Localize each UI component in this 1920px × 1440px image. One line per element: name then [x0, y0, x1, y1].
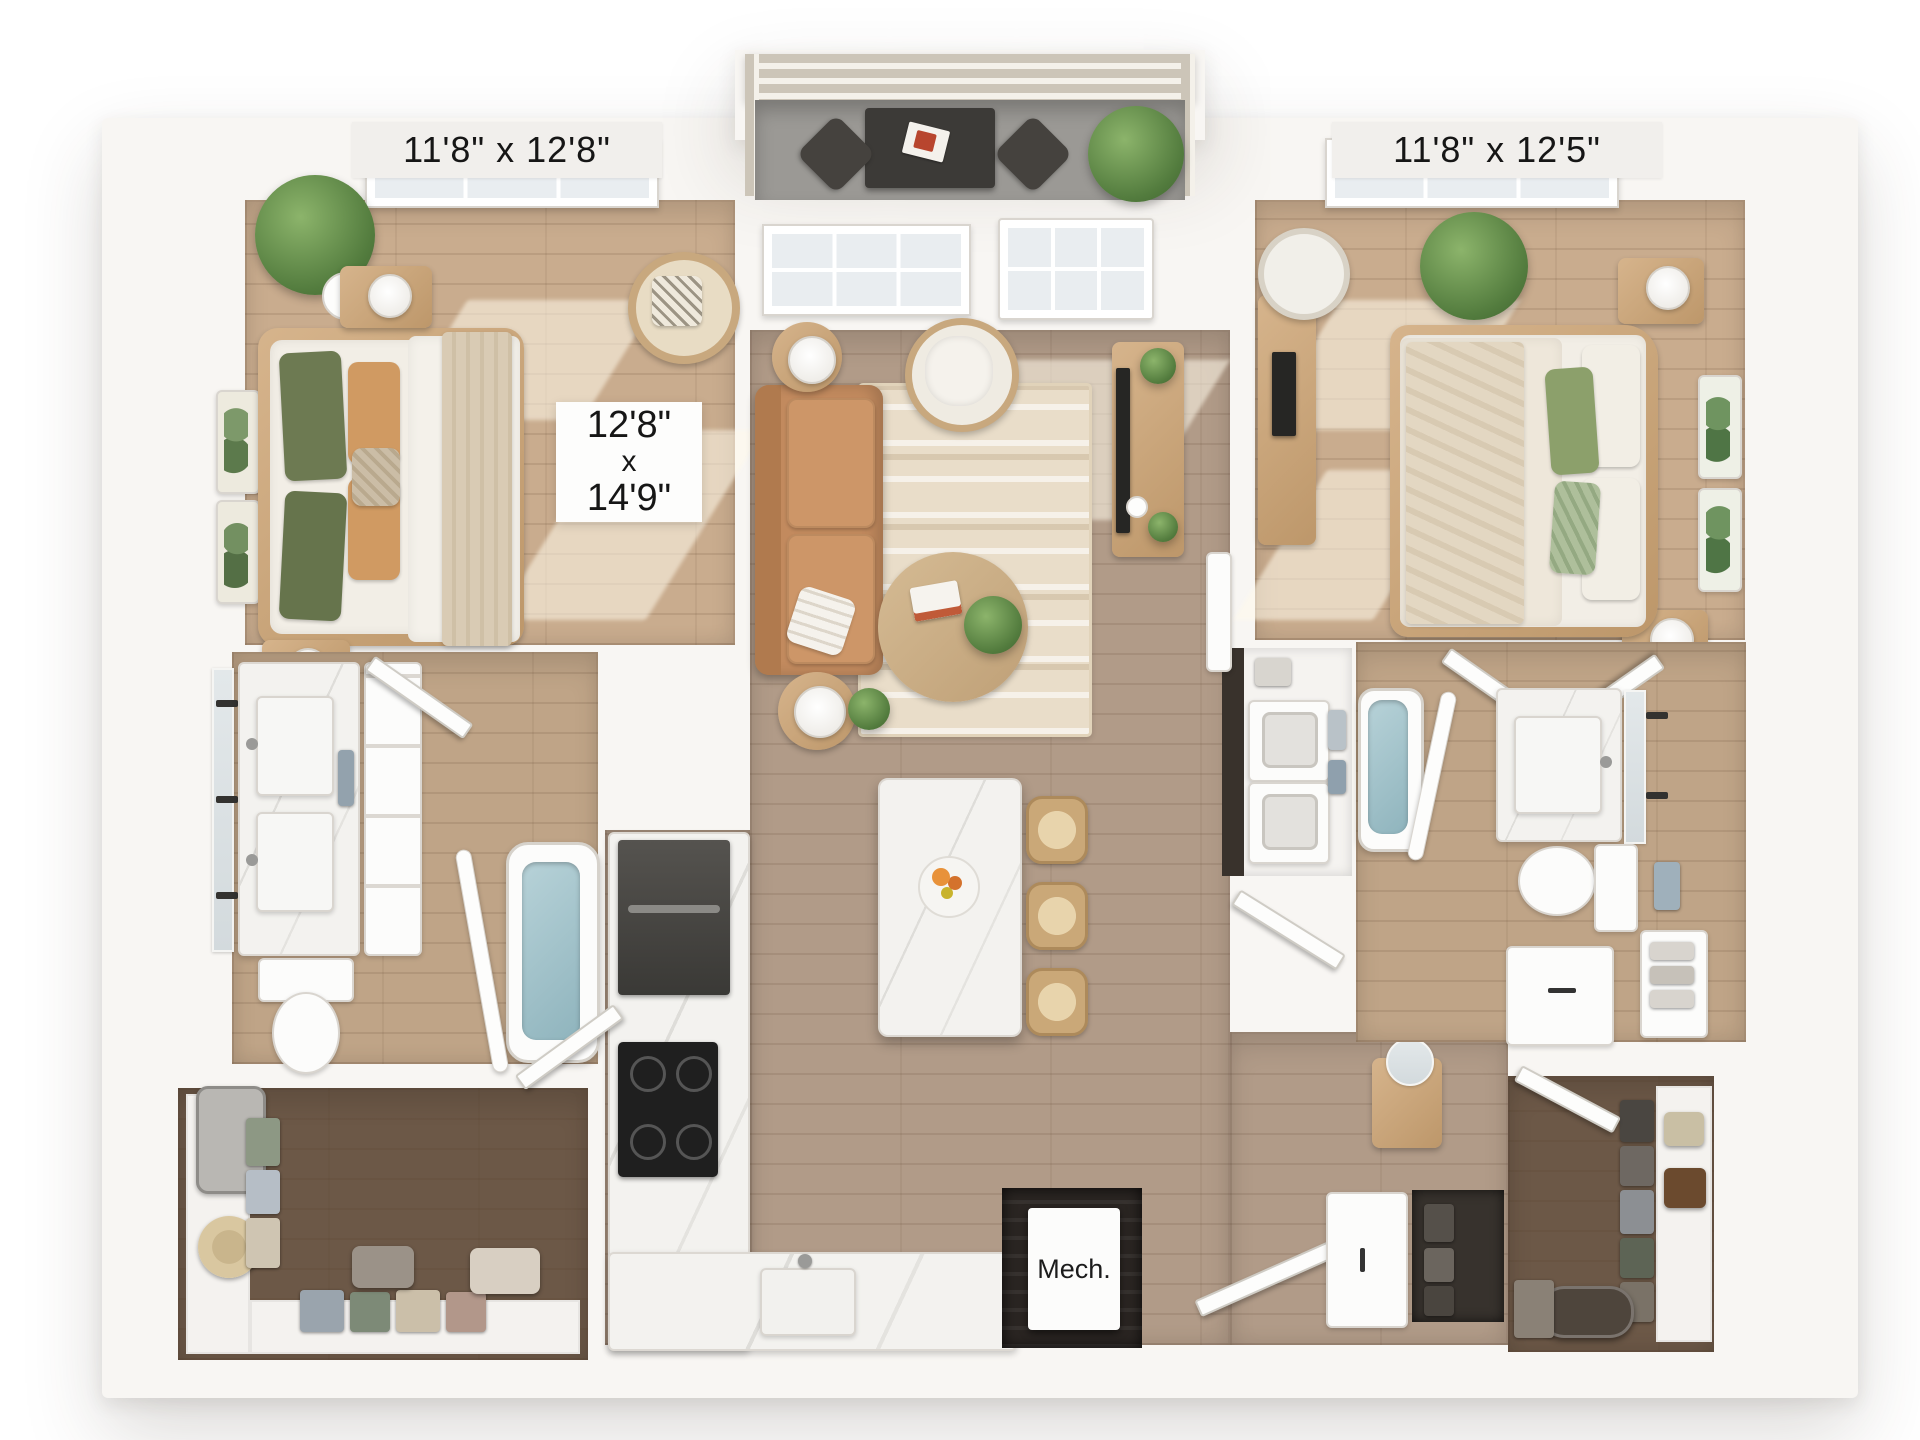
kitchen-sink — [760, 1268, 856, 1336]
bedroom-left-dimension-label: 11'8" x 12'8" — [352, 122, 662, 178]
console-plant — [1148, 512, 1178, 542]
sconce-light — [216, 796, 238, 803]
door-glass — [1008, 228, 1144, 310]
pillow-green — [279, 490, 348, 621]
vanity-mirror — [212, 668, 234, 952]
hanging-clothes-item — [300, 1290, 344, 1332]
sink-faucet — [246, 738, 258, 750]
hanging-clothes-item — [396, 1290, 440, 1332]
hand-towel — [1654, 862, 1680, 910]
console-vase — [1126, 496, 1148, 518]
table-lamp — [368, 274, 412, 318]
bathroom-dresser — [1506, 946, 1614, 1046]
toilet-tank — [1594, 844, 1638, 932]
cooktop-burner — [676, 1056, 712, 1092]
hanging-coat — [1424, 1286, 1454, 1316]
cabinet-handle — [1360, 1248, 1365, 1272]
bar-stool — [1026, 882, 1088, 950]
oven-handle — [628, 905, 720, 913]
folded-towels — [1328, 710, 1346, 750]
hanging-coat — [1424, 1204, 1454, 1242]
pillow-green — [279, 350, 348, 481]
handbag — [1664, 1112, 1704, 1146]
bar-stool — [1026, 796, 1088, 864]
folded-towels — [1650, 942, 1694, 960]
sconce-light — [1646, 792, 1668, 799]
hanging-clothes-item — [1620, 1100, 1654, 1142]
bed-right-throw-blanket — [1406, 342, 1524, 624]
bedroom-right-dimension-label: 11'8" x 12'5" — [1332, 122, 1662, 178]
coffee-table-plant — [964, 596, 1022, 654]
sink-faucet — [1600, 756, 1612, 768]
floor-lamp — [788, 336, 836, 384]
console-plant — [1140, 348, 1176, 384]
living-room-dimension-label: 12'8" x 14'9" — [556, 402, 702, 522]
living-dimension-width: 12'8" — [587, 405, 671, 446]
wall-art-leaf-motif — [224, 512, 248, 588]
hanging-clothes-item — [446, 1292, 486, 1332]
hanging-clothes-item — [246, 1218, 280, 1268]
cooktop-burner — [676, 1124, 712, 1160]
fruit-oranges — [932, 868, 950, 886]
hanging-coat — [1424, 1248, 1454, 1282]
storage-basket — [470, 1248, 540, 1294]
living-small-plant — [848, 688, 890, 730]
sofa-backrest — [755, 385, 781, 675]
living-dimension-separator: x — [622, 446, 637, 478]
sconce-light — [1646, 712, 1668, 719]
floor-plan-render: Mech. — [0, 0, 1920, 1440]
desk-chair — [1258, 228, 1350, 320]
toilet-bowl — [1518, 846, 1596, 916]
folded-towels — [1328, 760, 1346, 794]
pillow-patterned — [352, 448, 400, 506]
bathtub-water — [522, 862, 580, 1040]
bed-left-throw-blanket — [442, 332, 512, 646]
table-lamp — [1646, 266, 1690, 310]
washer-door — [1262, 712, 1318, 768]
pillow-floral — [1549, 481, 1601, 576]
bedroom-right-plant — [1420, 212, 1528, 320]
duffel-bag — [1540, 1286, 1634, 1338]
wall-oven-microwave — [618, 840, 730, 995]
fruit-bowl — [918, 856, 980, 918]
floor-lamp — [794, 686, 846, 738]
hanging-clothes-item — [1620, 1146, 1654, 1186]
wall-art-leaf-motif — [1706, 500, 1730, 576]
round-mirror — [1386, 1038, 1434, 1086]
sofa-cushion — [787, 398, 875, 528]
window-glass — [772, 234, 961, 306]
hanging-clothes-item — [246, 1170, 280, 1214]
balcony-privacy-screen — [745, 54, 1195, 102]
chair-cushion-patterned — [652, 276, 702, 326]
sink-faucet — [246, 854, 258, 866]
detergent-box — [1255, 658, 1291, 686]
folded-towels — [1650, 966, 1694, 984]
vanity-sink — [256, 696, 334, 796]
cooktop-burner — [630, 1056, 666, 1092]
living-dimension-length: 14'9" — [587, 478, 671, 519]
storage-basket — [352, 1246, 414, 1288]
kitchen-faucet — [798, 1254, 812, 1268]
vanity-sink — [256, 812, 334, 912]
entry-cabinet — [1326, 1192, 1408, 1328]
hanging-clothes-item — [246, 1118, 280, 1166]
balcony-palm-plant — [1088, 106, 1184, 202]
sconce-light — [216, 892, 238, 899]
toilet-bowl — [272, 992, 340, 1074]
hand-towel — [338, 750, 354, 806]
folded-blanket — [1514, 1280, 1554, 1338]
dryer-door — [1262, 794, 1318, 850]
hanging-clothes-item — [350, 1292, 390, 1332]
bedroom-right-pocket-door — [1206, 552, 1232, 672]
handbag — [1664, 1168, 1706, 1208]
armchair-cushion — [925, 336, 993, 406]
vanity-cabinet-tower — [364, 662, 422, 956]
bar-stool — [1026, 968, 1088, 1036]
hanging-clothes-item — [1620, 1238, 1654, 1278]
folded-towels — [1650, 990, 1694, 1008]
hanging-clothes-item — [1620, 1190, 1654, 1234]
mechanical-unit-label: Mech. — [1028, 1208, 1120, 1330]
vanity-sink — [1514, 716, 1602, 814]
laundry-back-wall — [1222, 648, 1244, 876]
vanity-mirror — [1624, 690, 1646, 844]
dresser-handle — [1548, 988, 1576, 993]
desk-monitor — [1272, 352, 1296, 436]
pillow-green — [1544, 366, 1599, 475]
cooktop-burner — [630, 1124, 666, 1160]
wall-art-leaf-motif — [224, 402, 248, 478]
living-room-window — [762, 224, 971, 316]
wall-art-leaf-motif — [1706, 387, 1730, 463]
balcony-glass-door — [998, 218, 1154, 320]
sconce-light — [216, 700, 238, 707]
bathtub-water — [1368, 700, 1408, 834]
